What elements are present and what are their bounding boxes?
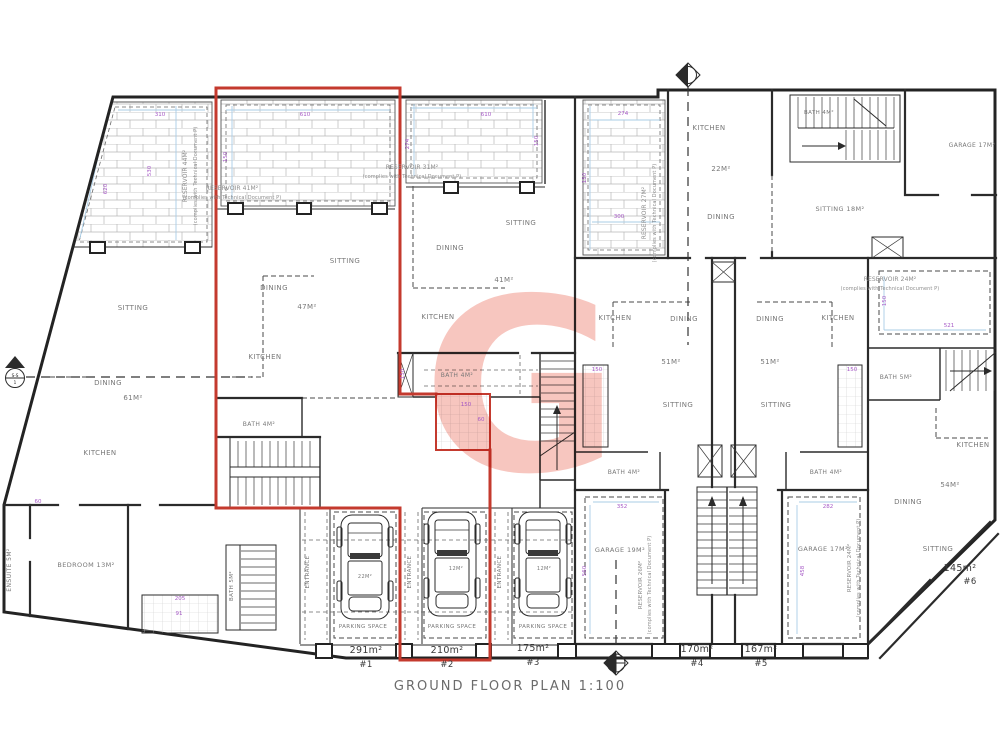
room-label: ENTRANCE xyxy=(407,555,413,588)
room-label: 12M² xyxy=(449,566,463,572)
unit-label: #6 xyxy=(963,577,976,587)
note-label: (complies with Technical Document P) xyxy=(647,536,653,635)
marker-label: S-S xyxy=(12,373,19,378)
dim-label: 150 xyxy=(461,402,472,408)
note-label: RESERVOIR 24M² xyxy=(846,544,853,592)
room-label: ENTRANCE xyxy=(305,555,311,588)
dim-label: 620 xyxy=(103,183,109,194)
room-label: 22M² xyxy=(358,574,372,580)
note-label: (complies with Technical Document P) xyxy=(193,127,199,226)
room-label: BATH 4M² xyxy=(608,469,641,476)
room-label: DINING xyxy=(756,315,784,323)
dim-label: 91 xyxy=(176,611,183,617)
room-label: GARAGE 17M² xyxy=(949,142,996,149)
note-label: RESERVOIR 27M² xyxy=(641,186,648,239)
area-label: 145m² xyxy=(944,563,977,574)
unit-label: #1 xyxy=(359,660,372,670)
area-label: 175m² xyxy=(517,643,550,654)
room-label: 51M² xyxy=(661,358,680,366)
room-label: 12M² xyxy=(537,566,551,572)
room-label: 61M² xyxy=(123,394,142,402)
car-icon xyxy=(424,512,480,616)
area-label: 291m² xyxy=(350,645,383,656)
note-label: RESERVOIR 31M² xyxy=(386,164,439,171)
room-label: KITCHEN xyxy=(821,314,854,322)
room-label: SITTING 18M² xyxy=(815,205,864,213)
dim-label: 274 xyxy=(405,138,411,149)
dim-label: 274 xyxy=(618,111,629,117)
room-label: PARKING SPACE xyxy=(519,624,568,630)
room-label: SITTING xyxy=(761,401,791,409)
dim-label: 150 xyxy=(592,367,603,373)
note-label: RESERVOIR 41M² xyxy=(206,185,259,192)
room-label: PARKING SPACE xyxy=(428,624,477,630)
room-label: 22M² xyxy=(711,165,730,173)
note-label: RESERVOIR 26M² xyxy=(637,561,644,609)
room-label: KITCHEN xyxy=(83,449,116,457)
dim-label: 610 xyxy=(300,112,311,118)
room-label: DINING xyxy=(436,244,464,252)
dim-label: 352 xyxy=(617,504,628,510)
dim-label: 60 xyxy=(35,499,42,505)
room-label: SITTING xyxy=(506,219,536,227)
car-icon xyxy=(337,515,393,619)
dim-label: 560 xyxy=(582,565,588,576)
room-label: BATH 4M² xyxy=(243,421,276,428)
dim-label: 150 xyxy=(847,367,858,373)
dim-label: 310 xyxy=(155,112,166,118)
room-label: SITTING xyxy=(663,401,693,409)
room-label: BATH 4M² xyxy=(810,469,843,476)
room-label: KITCHEN xyxy=(421,313,454,321)
unit-label: #2 xyxy=(440,660,453,670)
room-label: SITTING xyxy=(923,545,953,553)
room-label: SITTING xyxy=(118,304,148,312)
title-label: GROUND FLOOR PLAN 1:100 xyxy=(394,679,626,694)
dim-label: 521 xyxy=(944,323,955,329)
room-label: DINING xyxy=(260,284,288,292)
room-label: GARAGE 19M² xyxy=(595,546,645,554)
dim-label: 150 xyxy=(582,172,588,183)
room-label: KITCHEN xyxy=(248,353,281,361)
room-label: DINING xyxy=(94,379,122,387)
room-label: KITCHEN xyxy=(956,441,989,449)
note-label: (complies with Technical Document P) xyxy=(841,286,940,292)
room-label: 41M² xyxy=(494,276,513,284)
floor-plan-canvas: G SITTINGDINING61M²KITCHENBEDROOM 13M²EN… xyxy=(0,0,1000,750)
dim-label: 458 xyxy=(800,565,806,576)
room-label: ENSUITE 5M² xyxy=(6,548,13,592)
unit-1-walls xyxy=(4,377,276,633)
dim-label: 282 xyxy=(823,504,834,510)
note-label: (complies with Technical Document P) xyxy=(652,164,658,263)
room-label: 54M² xyxy=(940,481,959,489)
dim-label: 150 xyxy=(223,151,229,162)
car-icon xyxy=(515,512,571,616)
dim-label: 300 xyxy=(614,214,625,220)
room-label: KITCHEN xyxy=(692,124,725,132)
dim-label: 150 xyxy=(534,135,540,146)
room-label: BATH 5M² xyxy=(228,571,235,601)
room-label: BATH 4M² xyxy=(804,109,834,116)
room-label: BATH 4M² xyxy=(441,372,474,379)
room-label: DINING xyxy=(707,213,735,221)
dim-label: 610 xyxy=(481,112,492,118)
room-label: DINING xyxy=(894,498,922,506)
note-label: (complies with Technical Document P) xyxy=(183,195,282,201)
room-label: KITCHEN xyxy=(598,314,631,322)
unit-label: #3 xyxy=(526,658,539,668)
area-label: 210m² xyxy=(431,645,464,656)
room-label: PARKING SPACE xyxy=(339,624,388,630)
dim-label: 530 xyxy=(147,165,153,176)
marker-label: 1 xyxy=(14,380,17,385)
room-label: GARAGE 17M² xyxy=(798,545,848,553)
note-label: RESERVOIR 24M² xyxy=(864,276,917,283)
room-label: BATH 5M² xyxy=(880,374,913,381)
unit-label: #4 xyxy=(690,659,703,669)
unit-label: #5 xyxy=(754,659,767,669)
note-label: (complies with Technical Document P) xyxy=(363,174,462,180)
note-label: (complies with Technical Document P) xyxy=(856,519,862,618)
dim-label: 60 xyxy=(478,417,485,423)
watermark-letter: G xyxy=(423,247,620,527)
room-label: DINING xyxy=(670,315,698,323)
floor-plan-drawing: G SITTINGDINING61M²KITCHENBEDROOM 13M²EN… xyxy=(0,0,1000,750)
room-label: BEDROOM 13M² xyxy=(57,561,114,569)
room-label: 51M² xyxy=(760,358,779,366)
room-label: SITTING xyxy=(330,257,360,265)
dim-label: 205 xyxy=(175,596,186,602)
room-label: 47M² xyxy=(297,303,316,311)
top-right-block xyxy=(790,95,903,258)
dim-label: 150 xyxy=(400,368,406,379)
area-label: 170m² xyxy=(681,644,714,655)
area-label: 167m² xyxy=(745,644,778,655)
dim-label: 150 xyxy=(882,295,888,306)
unit-6-interior xyxy=(868,348,998,658)
room-label: ENTRANCE xyxy=(497,555,503,588)
